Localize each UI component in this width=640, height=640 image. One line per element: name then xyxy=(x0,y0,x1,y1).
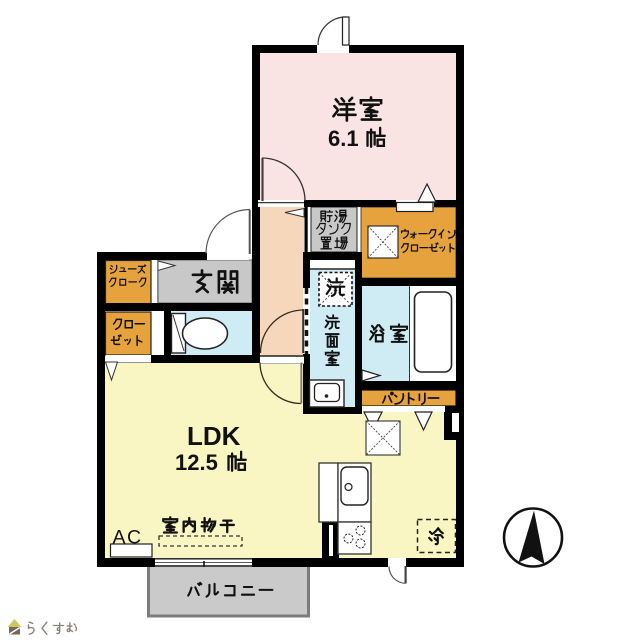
svg-text:6.1: 6.1 xyxy=(328,126,359,151)
svg-text:AC: AC xyxy=(113,527,143,549)
svg-text:12.5: 12.5 xyxy=(175,450,218,475)
svg-text:LDK: LDK xyxy=(187,421,241,451)
